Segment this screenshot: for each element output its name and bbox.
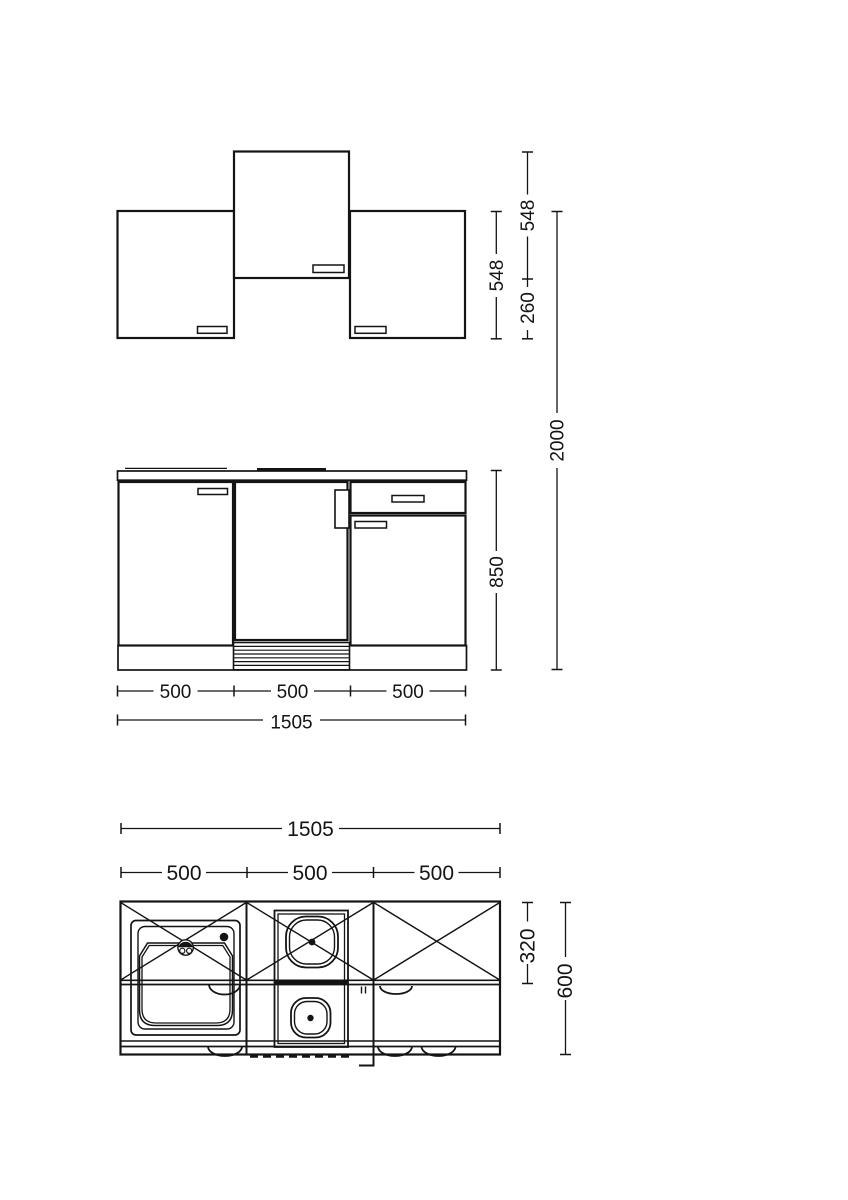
svg-text:2000: 2000 <box>548 419 569 461</box>
svg-text:548: 548 <box>518 200 539 232</box>
svg-text:500: 500 <box>166 862 201 885</box>
svg-text:500: 500 <box>419 862 454 885</box>
svg-text:320: 320 <box>517 928 540 963</box>
svg-text:260: 260 <box>518 292 539 324</box>
svg-text:500: 500 <box>292 862 327 885</box>
svg-text:500: 500 <box>160 682 192 703</box>
svg-text:600: 600 <box>554 963 577 998</box>
svg-text:1505: 1505 <box>287 818 334 841</box>
svg-text:850: 850 <box>487 556 508 588</box>
svg-text:1505: 1505 <box>270 713 312 734</box>
svg-text:548: 548 <box>487 260 508 292</box>
svg-text:500: 500 <box>277 682 309 703</box>
svg-text:500: 500 <box>392 682 424 703</box>
